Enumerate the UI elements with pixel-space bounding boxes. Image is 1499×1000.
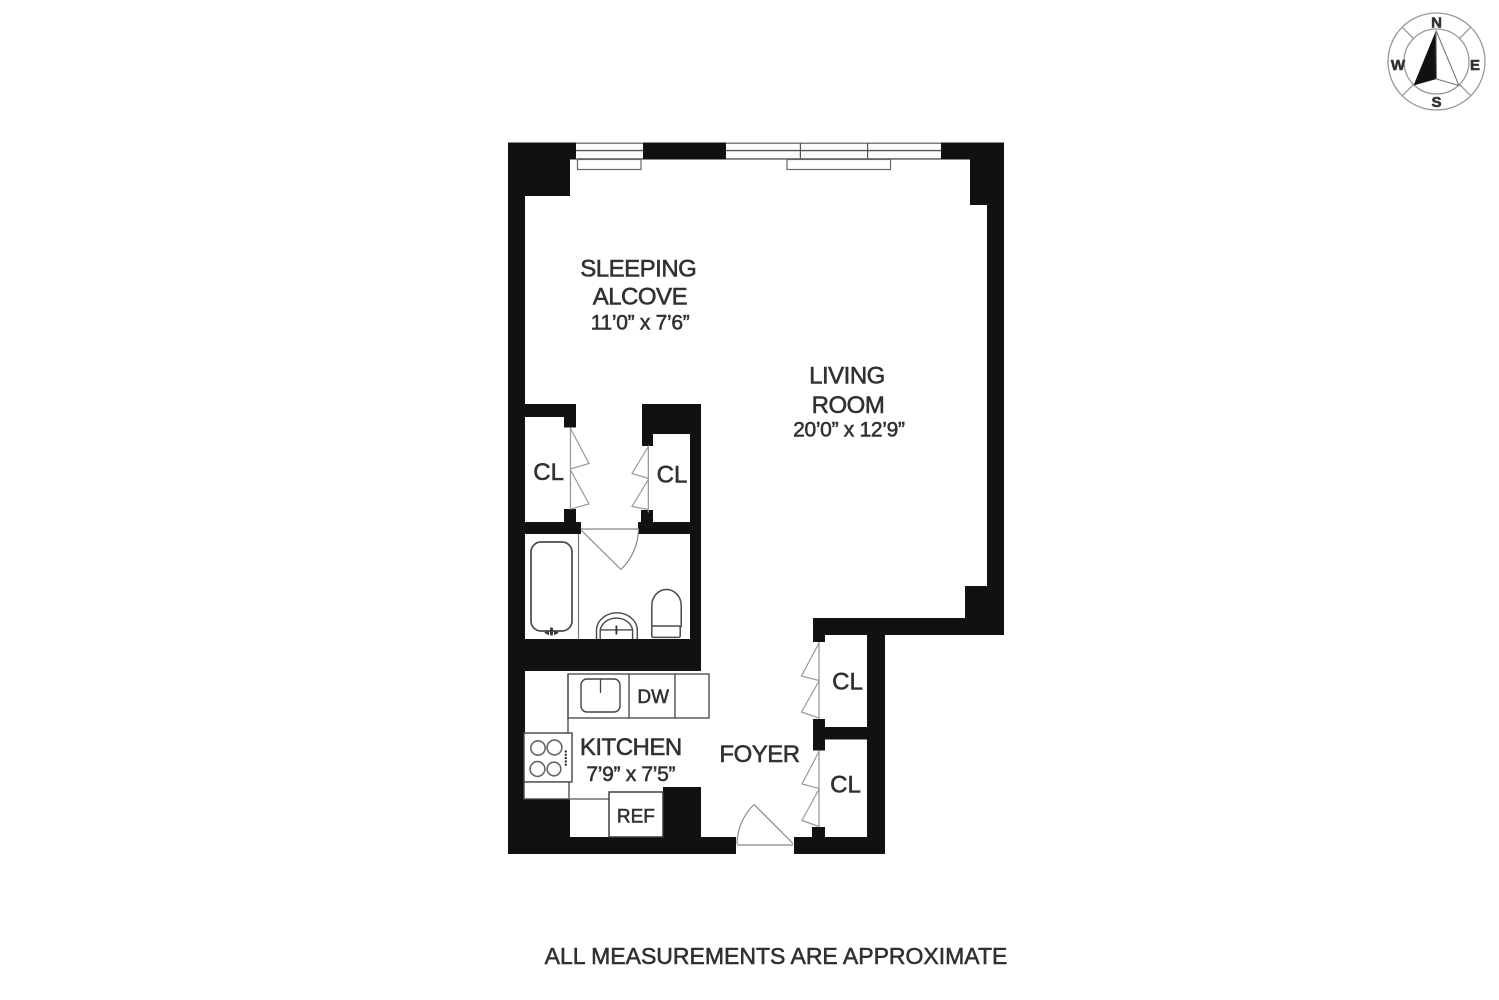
svg-text:N: N	[1431, 14, 1442, 31]
svg-text:REF: REF	[617, 807, 655, 828]
svg-text:E: E	[1470, 57, 1480, 74]
svg-text:7’9” x 7’5”: 7’9” x 7’5”	[586, 763, 675, 786]
svg-text:KITCHEN: KITCHEN	[580, 734, 682, 761]
svg-text:ROOM: ROOM	[812, 392, 885, 419]
svg-text:CL: CL	[657, 462, 688, 489]
svg-text:W: W	[1391, 57, 1406, 74]
svg-text:ALCOVE: ALCOVE	[593, 284, 687, 311]
svg-text:LIVING: LIVING	[809, 363, 885, 390]
svg-text:CL: CL	[830, 772, 861, 799]
svg-text:S: S	[1431, 94, 1441, 111]
svg-text:SLEEPING: SLEEPING	[580, 255, 696, 282]
svg-text:CL: CL	[533, 459, 564, 486]
svg-text:DW: DW	[637, 687, 669, 708]
svg-text:CL: CL	[832, 669, 863, 696]
svg-text:20’0” x 12’9”: 20’0” x 12’9”	[793, 419, 905, 442]
svg-text:ALL MEASUREMENTS ARE APPROXIMA: ALL MEASUREMENTS ARE APPROXIMATE	[545, 943, 1008, 969]
svg-text:11’0” x 7’6”: 11’0” x 7’6”	[591, 312, 690, 335]
svg-text:FOYER: FOYER	[719, 741, 799, 768]
